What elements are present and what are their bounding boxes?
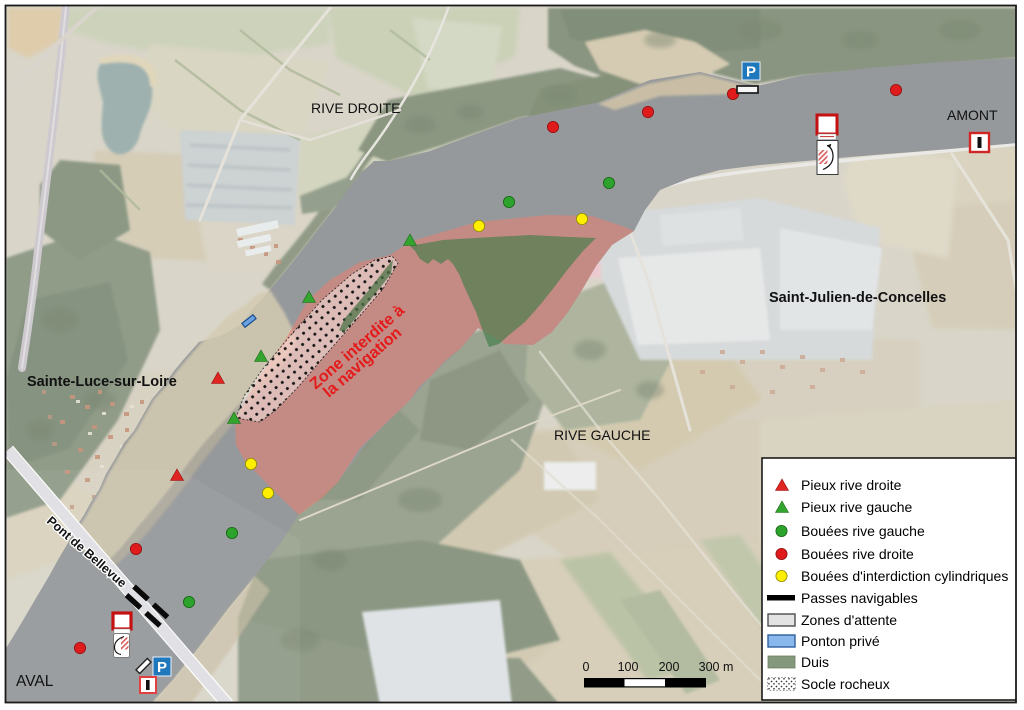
svg-text:RIVE GAUCHE: RIVE GAUCHE bbox=[554, 427, 650, 443]
svg-text:Ponton privé: Ponton privé bbox=[801, 633, 880, 649]
svg-text:Sainte-Luce-sur-Loire: Sainte-Luce-sur-Loire bbox=[27, 374, 177, 390]
svg-text:Bouées d'interdiction cylindri: Bouées d'interdiction cylindriques bbox=[801, 568, 1008, 584]
svg-text:300 m: 300 m bbox=[699, 660, 734, 674]
svg-text:100: 100 bbox=[618, 660, 639, 674]
svg-text:RIVE DROITE: RIVE DROITE bbox=[311, 100, 400, 116]
svg-text:AVAL: AVAL bbox=[16, 673, 54, 690]
svg-text:Pieux rive droite: Pieux rive droite bbox=[801, 477, 902, 493]
svg-text:0: 0 bbox=[583, 660, 590, 674]
svg-text:Bouées rive droite: Bouées rive droite bbox=[801, 546, 914, 562]
svg-text:Bouées rive gauche: Bouées rive gauche bbox=[801, 523, 925, 539]
svg-text:P: P bbox=[157, 659, 167, 676]
svg-text:Duis: Duis bbox=[801, 654, 829, 670]
svg-text:Socle rocheux: Socle rocheux bbox=[801, 676, 890, 692]
svg-text:200: 200 bbox=[659, 660, 680, 674]
svg-text:AMONT: AMONT bbox=[947, 107, 998, 123]
svg-text:Saint-Julien-de-Concelles: Saint-Julien-de-Concelles bbox=[769, 290, 946, 306]
svg-text:Zones d'attente: Zones d'attente bbox=[801, 612, 897, 628]
svg-text:P: P bbox=[746, 64, 756, 81]
svg-text:Pieux rive gauche: Pieux rive gauche bbox=[801, 499, 913, 515]
svg-text:Passes navigables: Passes navigables bbox=[801, 590, 918, 606]
